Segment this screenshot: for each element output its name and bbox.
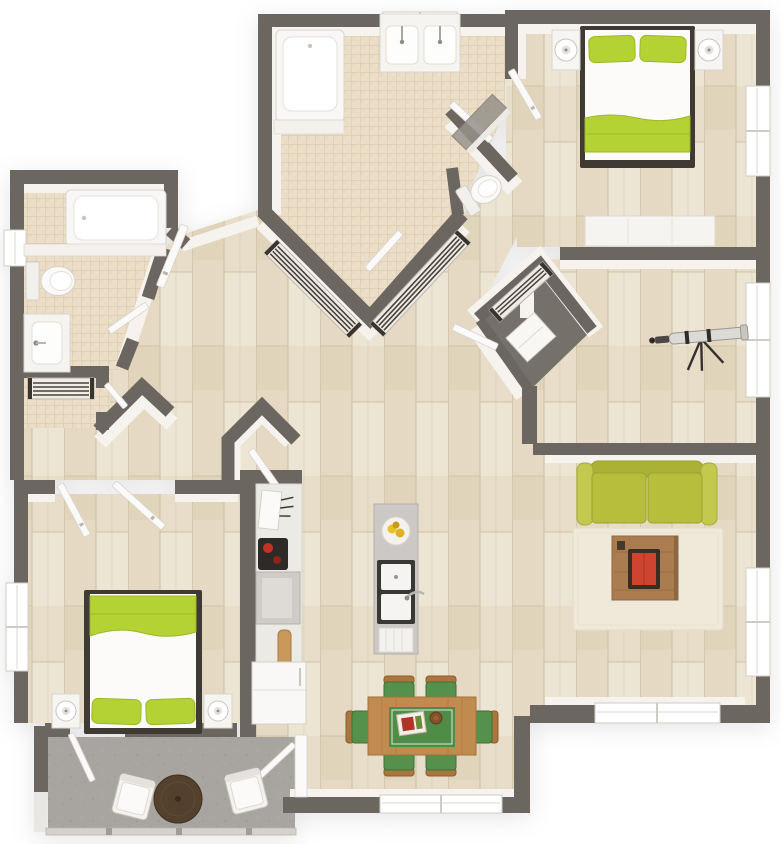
bathtub [274,30,344,134]
wall [258,14,385,27]
window-second-bedroom-left [6,583,28,671]
patio-railing [46,828,296,835]
wall [530,705,597,723]
window-second-bathroom-left [4,230,26,266]
wall-face [560,260,760,269]
nightstand-right [204,694,232,728]
window-master-bedroom-right [746,86,770,176]
nightstand-left [52,694,80,728]
dishwasher-front [379,628,413,652]
wall-face [24,494,55,502]
wall-face [518,24,526,79]
wall [533,443,756,455]
chair [473,711,498,743]
wall [718,705,770,723]
chair [346,711,371,743]
blanket [90,596,196,636]
kitchen-island [374,504,424,654]
wall [34,726,48,792]
wall [258,14,272,217]
master-bed [580,26,695,168]
window-dining-bottom [380,795,502,813]
floor-plan-image: 3D top-down floor plan of a two-bedroom … [0,0,781,844]
refrigerator [252,662,306,724]
second-bed [84,590,202,734]
small-object [617,541,625,550]
nightstand-right [695,30,723,70]
wall [505,10,770,24]
coffee-table [612,536,678,600]
wall [505,14,518,79]
wall [560,247,770,260]
patio-wall-white [295,735,307,797]
nightstand-left [552,30,580,70]
wall-face [175,494,238,502]
wall [522,386,537,444]
wall [283,797,382,813]
dresser-bench [585,216,715,246]
patio-table [154,775,202,823]
cooktop [256,572,300,624]
window-living-bottom [595,703,720,723]
wall [455,14,510,27]
window-den-right [746,283,770,397]
living-room [573,461,723,630]
window-living-right [746,568,770,676]
wall [10,170,178,184]
floor-plan-page: 3D top-down floor plan of a two-bedroom … [0,0,781,844]
vanity-sink [24,314,70,372]
fruit-plate [382,517,410,545]
dining-table [368,697,476,755]
hall-closet-rail [28,378,94,399]
wall [10,170,24,480]
serving-tray [397,711,427,736]
wall [500,797,521,813]
double-vanity [380,14,460,72]
coffee-machine [258,538,288,570]
patio-low-wall [34,790,47,832]
